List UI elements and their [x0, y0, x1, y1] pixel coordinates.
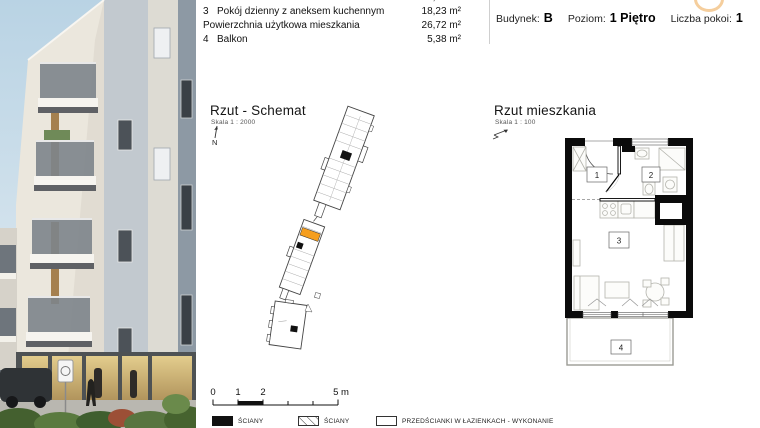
room-number: 3	[203, 5, 217, 19]
table-row-total: Powierzchnia użytkowa mieszkania 26,72 m…	[203, 19, 461, 33]
building-label: Budynek:	[496, 13, 540, 25]
rooms-value: 1	[736, 11, 743, 25]
level-value: 1 Piętro	[610, 11, 656, 25]
room-name: Balkon	[217, 33, 427, 47]
unit-header: Budynek: B Poziom: 1 Piętro Liczba pokoi…	[496, 11, 743, 25]
shaft	[660, 203, 682, 219]
room-number: 4	[203, 33, 217, 47]
partition-swatch	[376, 416, 397, 426]
table-row: 4 Balkon 5,38 m²	[203, 33, 461, 47]
legend-item-walls-hatched: ŚCIANY	[298, 416, 349, 426]
svg-text:5 m: 5 m	[333, 387, 349, 398]
level-label: Poziom:	[568, 13, 606, 25]
room-name: Pokój dzienny z aneksem kuchennym	[217, 5, 422, 19]
plan-north-arrow-icon	[491, 127, 513, 141]
svg-text:2: 2	[260, 387, 265, 398]
site-plan	[262, 98, 477, 373]
building-photo-art	[0, 0, 196, 428]
level-field: Poziom: 1 Piętro	[568, 11, 656, 25]
floorplan-title: Rzut mieszkania	[494, 103, 596, 118]
scale-bar-labels: 0 1 2 5 m	[210, 387, 349, 398]
listing-sheet: 2 Łazienka 4,54 m² 3 Pokój dzienny z ane…	[0, 0, 760, 428]
room-label-balcony: 4	[619, 344, 624, 353]
rooms-label: Liczba pokoi:	[671, 13, 732, 25]
site-building-a	[303, 105, 379, 230]
table-row: 3 Pokój dzienny z aneksem kuchennym 18,2…	[203, 5, 461, 19]
floor-plan: 1 2 3 4	[558, 128, 702, 373]
building-field: Budynek: B	[496, 11, 553, 25]
solid-wall-swatch	[212, 416, 233, 426]
room-area: 18,23 m²	[422, 5, 461, 19]
room-label-bath: 2	[649, 171, 654, 180]
total-label: Powierzchnia użytkowa mieszkania	[203, 19, 422, 33]
scale-bar: 0 1 2 5 m	[205, 386, 355, 412]
room-label-hall: 1	[595, 171, 600, 180]
header-divider	[489, 0, 490, 44]
site-building-c	[266, 298, 307, 349]
room-label-living: 3	[617, 237, 622, 246]
room-area: 5,38 m²	[427, 33, 461, 47]
building-value: B	[544, 11, 553, 25]
legend-item-walls-solid: ŚCIANY	[212, 416, 263, 426]
site-building-b	[272, 218, 324, 304]
north-arrow-icon: N	[207, 124, 223, 146]
legend: ŚCIANY ŚCIANY PRZEDŚCIANKI W ŁAZIENKACH …	[205, 416, 760, 428]
north-letter: N	[212, 138, 217, 146]
area-table: 2 Łazienka 4,54 m² 3 Pokój dzienny z ane…	[203, 0, 461, 47]
svg-text:1: 1	[235, 387, 240, 398]
hatched-wall-swatch	[298, 416, 319, 426]
building-photo	[0, 0, 196, 428]
svg-text:0: 0	[210, 387, 215, 398]
rooms-field: Liczba pokoi: 1	[671, 11, 743, 25]
floorplan-scale: Skala 1 : 100	[495, 119, 536, 126]
legend-item-partitions: PRZEDŚCIANKI W ŁAZIENKACH - WYKONANIE	[376, 416, 554, 426]
total-area: 26,72 m²	[422, 19, 461, 33]
